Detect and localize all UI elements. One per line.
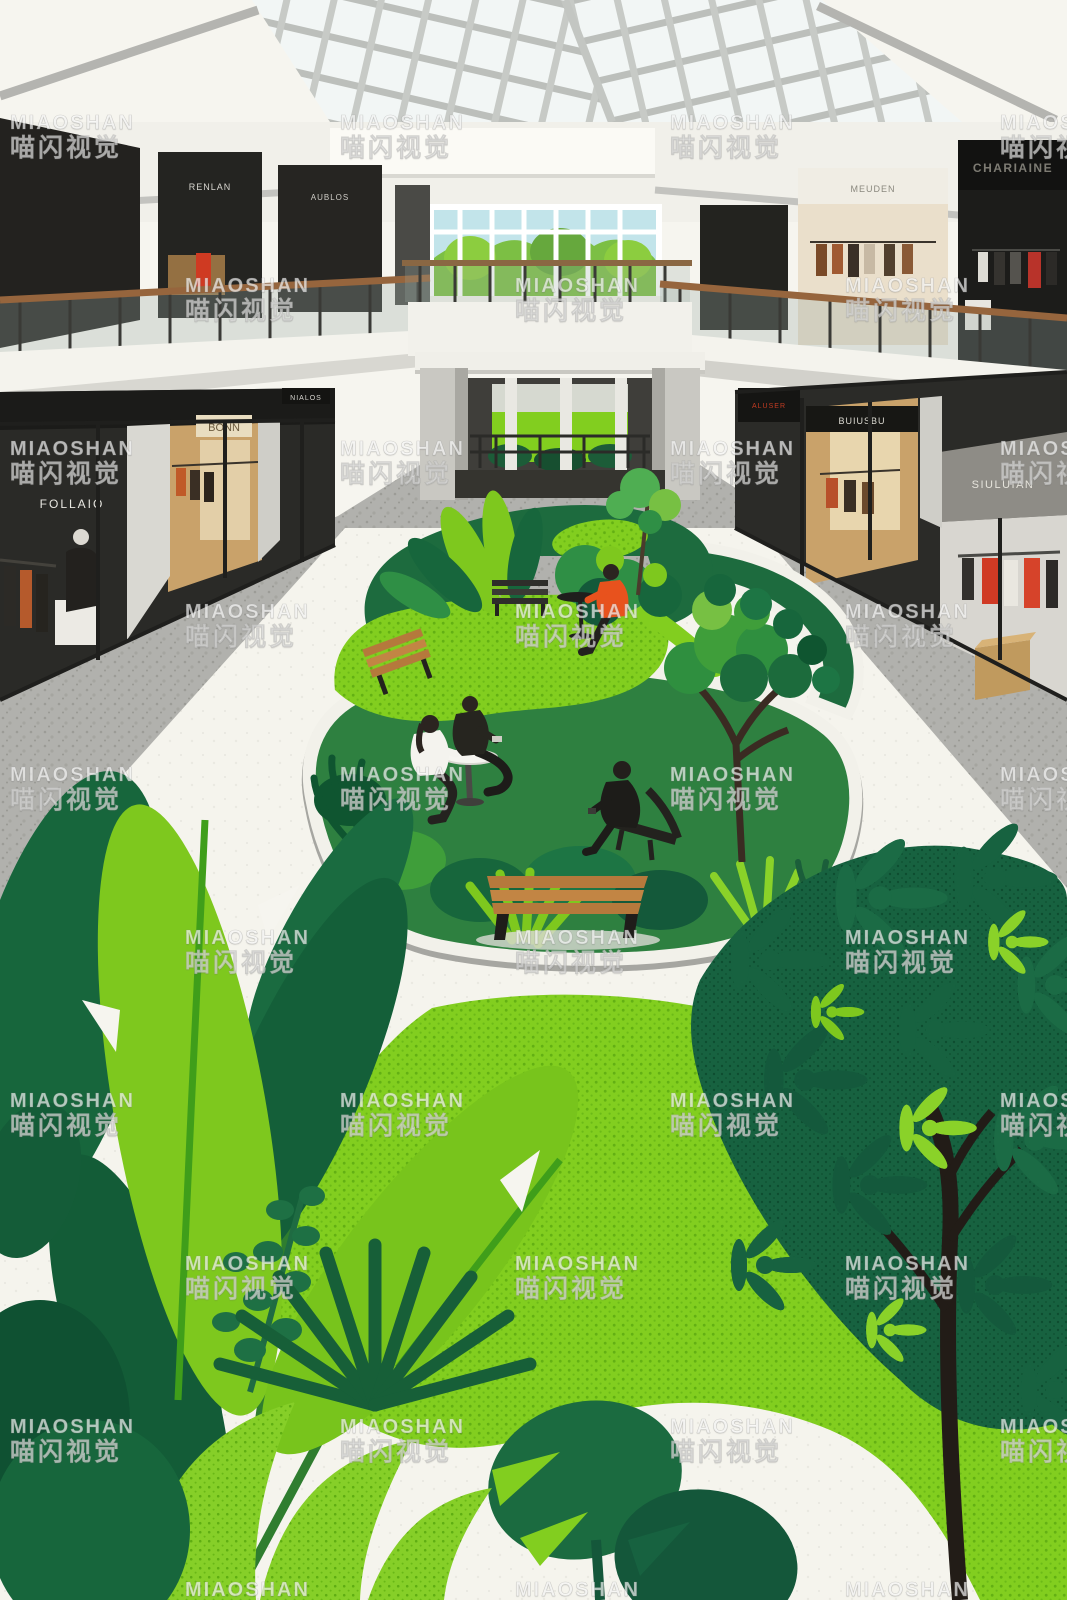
garment [864,244,875,274]
garment-orange [20,570,32,628]
garment [962,558,974,600]
sprig-leaflet [234,1338,266,1362]
held-item [492,736,502,742]
sign-lower-right-gray: SIULUIAN [972,479,1035,491]
small-tree-foliage [606,491,634,519]
bench-slat [492,598,548,604]
garment [190,470,200,500]
sign-upper-right-cream: MEUDEN [850,184,895,194]
garment-orange [176,468,186,496]
mannequin-head [73,529,89,545]
sign-lower-left-dark: FOLLAIO [40,497,105,511]
hedge-blob [704,574,736,606]
warm-backwall [830,430,900,530]
garment [848,244,859,277]
garment-white [1004,560,1018,606]
table-stem [580,600,582,636]
person-torso [597,580,629,618]
sprig-leaflet [299,1186,325,1206]
balustrade-glass-center [405,264,690,302]
garment [1046,252,1057,285]
mannequin-coat [66,548,96,612]
box-front [975,640,1030,700]
phone [588,808,596,814]
table-stem [468,762,470,800]
garment [832,244,843,274]
sign-lower-left-small: NIALOS [290,395,322,402]
sign-upper-left-2: AUBLOS [311,193,349,202]
person-head [421,715,439,733]
bench-leg [650,840,652,860]
pilaster [258,421,280,562]
garment [902,244,913,274]
bench-slat [492,903,641,914]
sprig-leaflet [223,1252,249,1272]
slab-center [408,302,692,356]
garment [1046,560,1058,608]
illustration-scene: RENLAN AUBLOS MEUDEN CHARIAINE [0,0,1067,1600]
sprig-leaflet [292,1226,320,1246]
pergola-column [505,378,517,470]
small-tree-foliage [638,510,662,534]
sprig-leaflet [266,1200,294,1220]
garment [4,566,16,626]
bench-slat [490,890,644,901]
garment-red [826,478,838,508]
garment-red [1024,558,1040,608]
person-head [462,696,478,712]
shrub-highlight [643,563,667,587]
hedge-blob [773,609,803,639]
store-warm-right: BUIUSBU [806,398,918,585]
sprig-leaflet [253,1241,283,1263]
hedge-blob [740,588,772,620]
garment [844,480,856,512]
island-tree-foliage [720,654,768,702]
bench-slat [492,580,548,586]
pilaster [920,396,942,528]
bench-wood-front [476,876,660,950]
sign-lower-right-warm: BUIUSBU [838,416,885,426]
garment [884,244,895,276]
garment [978,252,988,282]
bench-slat [487,876,648,888]
garment-red [982,558,998,604]
person-head [603,564,619,580]
person-head [613,761,631,779]
person-hair [419,724,422,752]
garment [204,472,214,502]
table-base [569,633,593,639]
pergola-column [615,378,627,470]
garment [816,244,827,276]
garment [36,574,48,632]
pergola-column [560,378,572,470]
sign-upper-right-dark: CHARIAINE [973,161,1053,175]
table-base [456,798,484,806]
garment-red [1028,252,1041,288]
sprig-leaflet [243,1289,273,1311]
mall-atrium-illustration: RENLAN AUBLOS MEUDEN CHARIAINE [0,0,1067,1600]
bench-slat [492,589,548,595]
hedge-blob [812,666,840,694]
sign-upper-left-1: RENLAN [189,182,232,192]
sign-lower-right-red: ALUSER [752,403,786,410]
hedge-blob [797,635,827,665]
garment [994,252,1005,285]
garment [1010,252,1021,284]
